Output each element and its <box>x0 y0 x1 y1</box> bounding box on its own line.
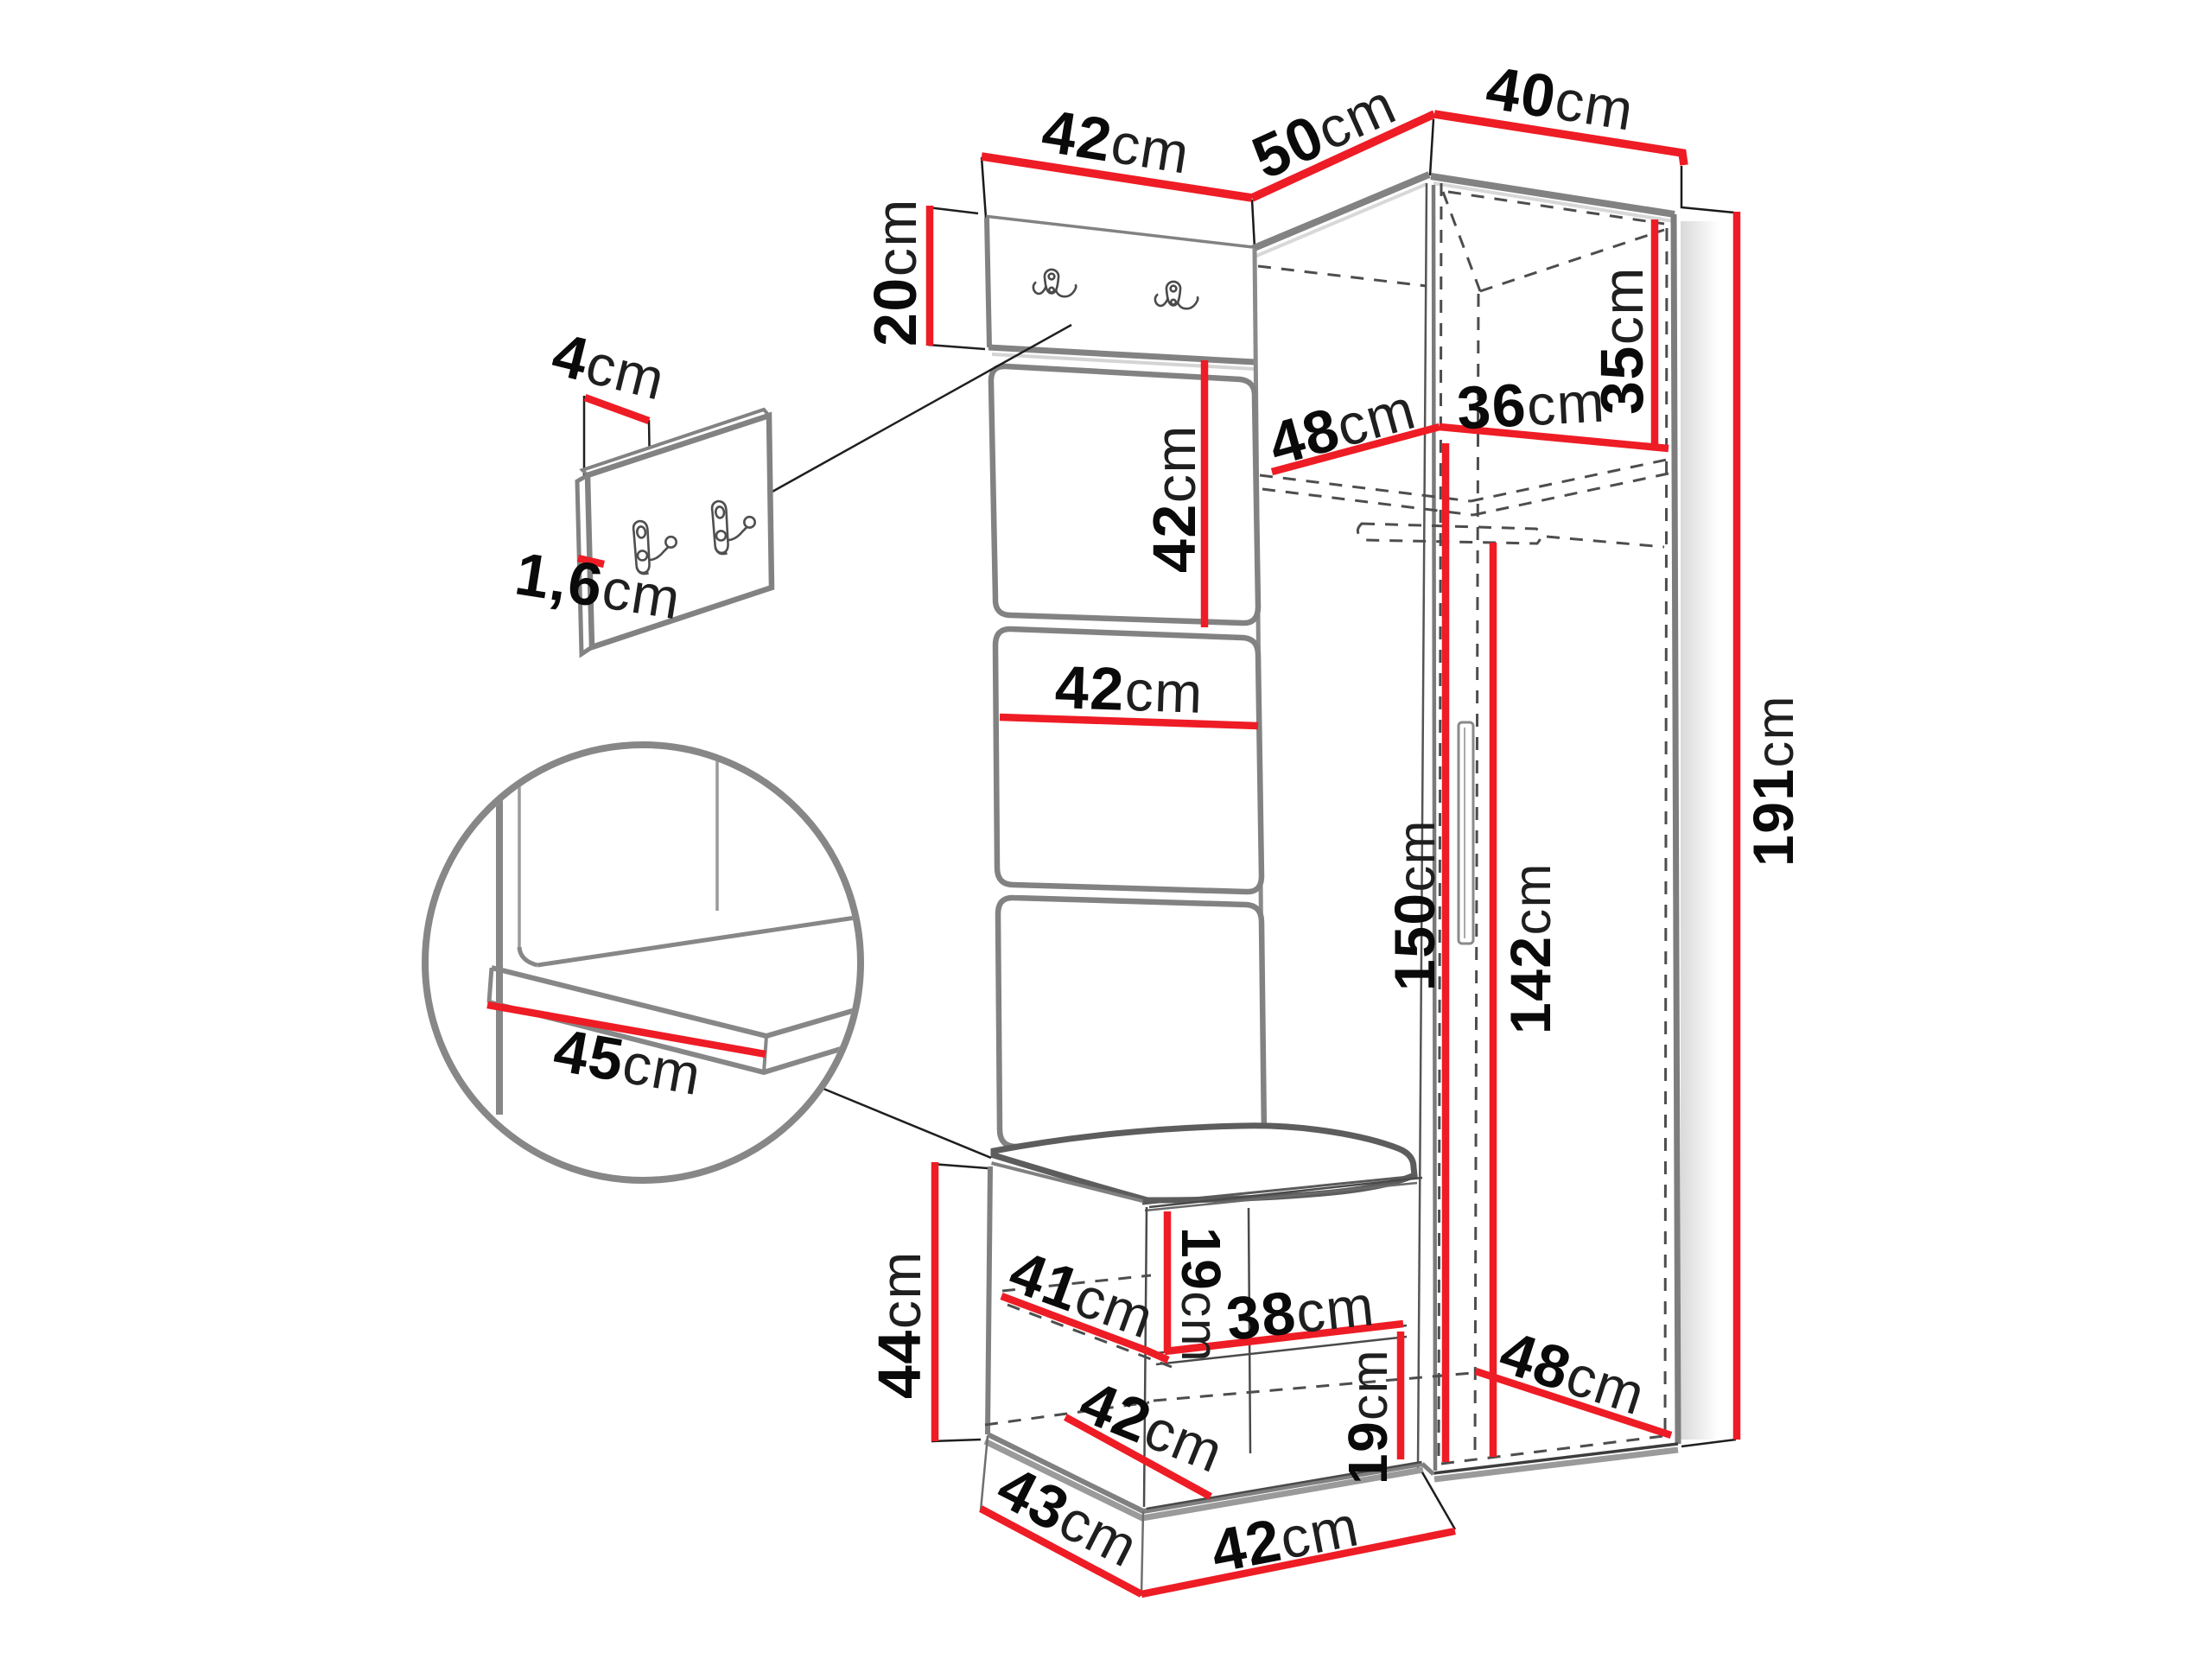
svg-text:42cm: 42cm <box>1054 653 1205 726</box>
svg-text:19cm: 19cm <box>1170 1227 1232 1363</box>
svg-text:191cm: 191cm <box>1741 695 1805 867</box>
svg-text:35cm: 35cm <box>1588 266 1656 415</box>
svg-text:19cm: 19cm <box>1337 1349 1399 1484</box>
svg-text:20cm: 20cm <box>861 198 929 346</box>
svg-text:142cm: 142cm <box>1498 862 1562 1034</box>
svg-text:42cm: 42cm <box>1141 424 1208 573</box>
svg-text:36cm: 36cm <box>1455 367 1607 442</box>
svg-text:44cm: 44cm <box>866 1250 933 1399</box>
svg-text:150cm: 150cm <box>1382 819 1446 991</box>
